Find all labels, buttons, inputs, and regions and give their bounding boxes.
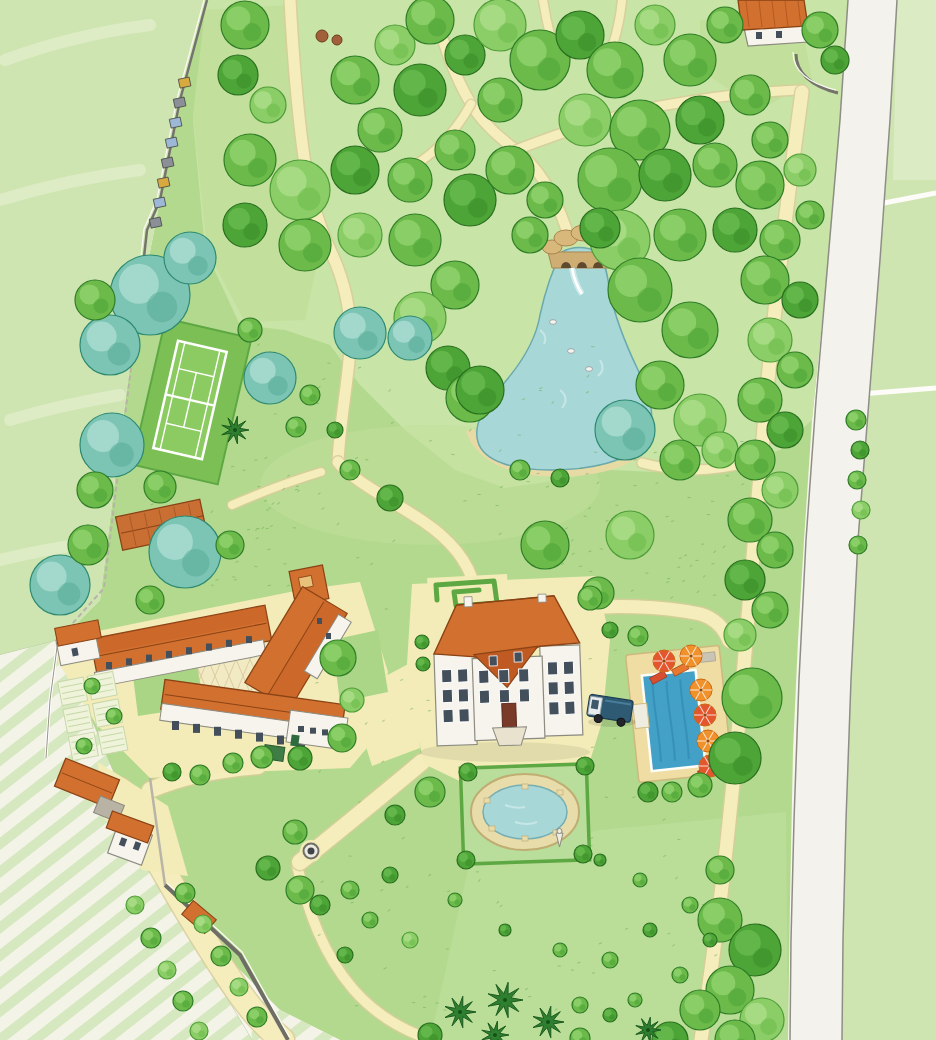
well [300, 840, 322, 862]
estate-map-illustration [0, 0, 936, 1040]
roadside-cottage [738, 0, 808, 46]
estate-map-canvas [0, 0, 936, 1040]
ornamental-basin [460, 764, 589, 864]
